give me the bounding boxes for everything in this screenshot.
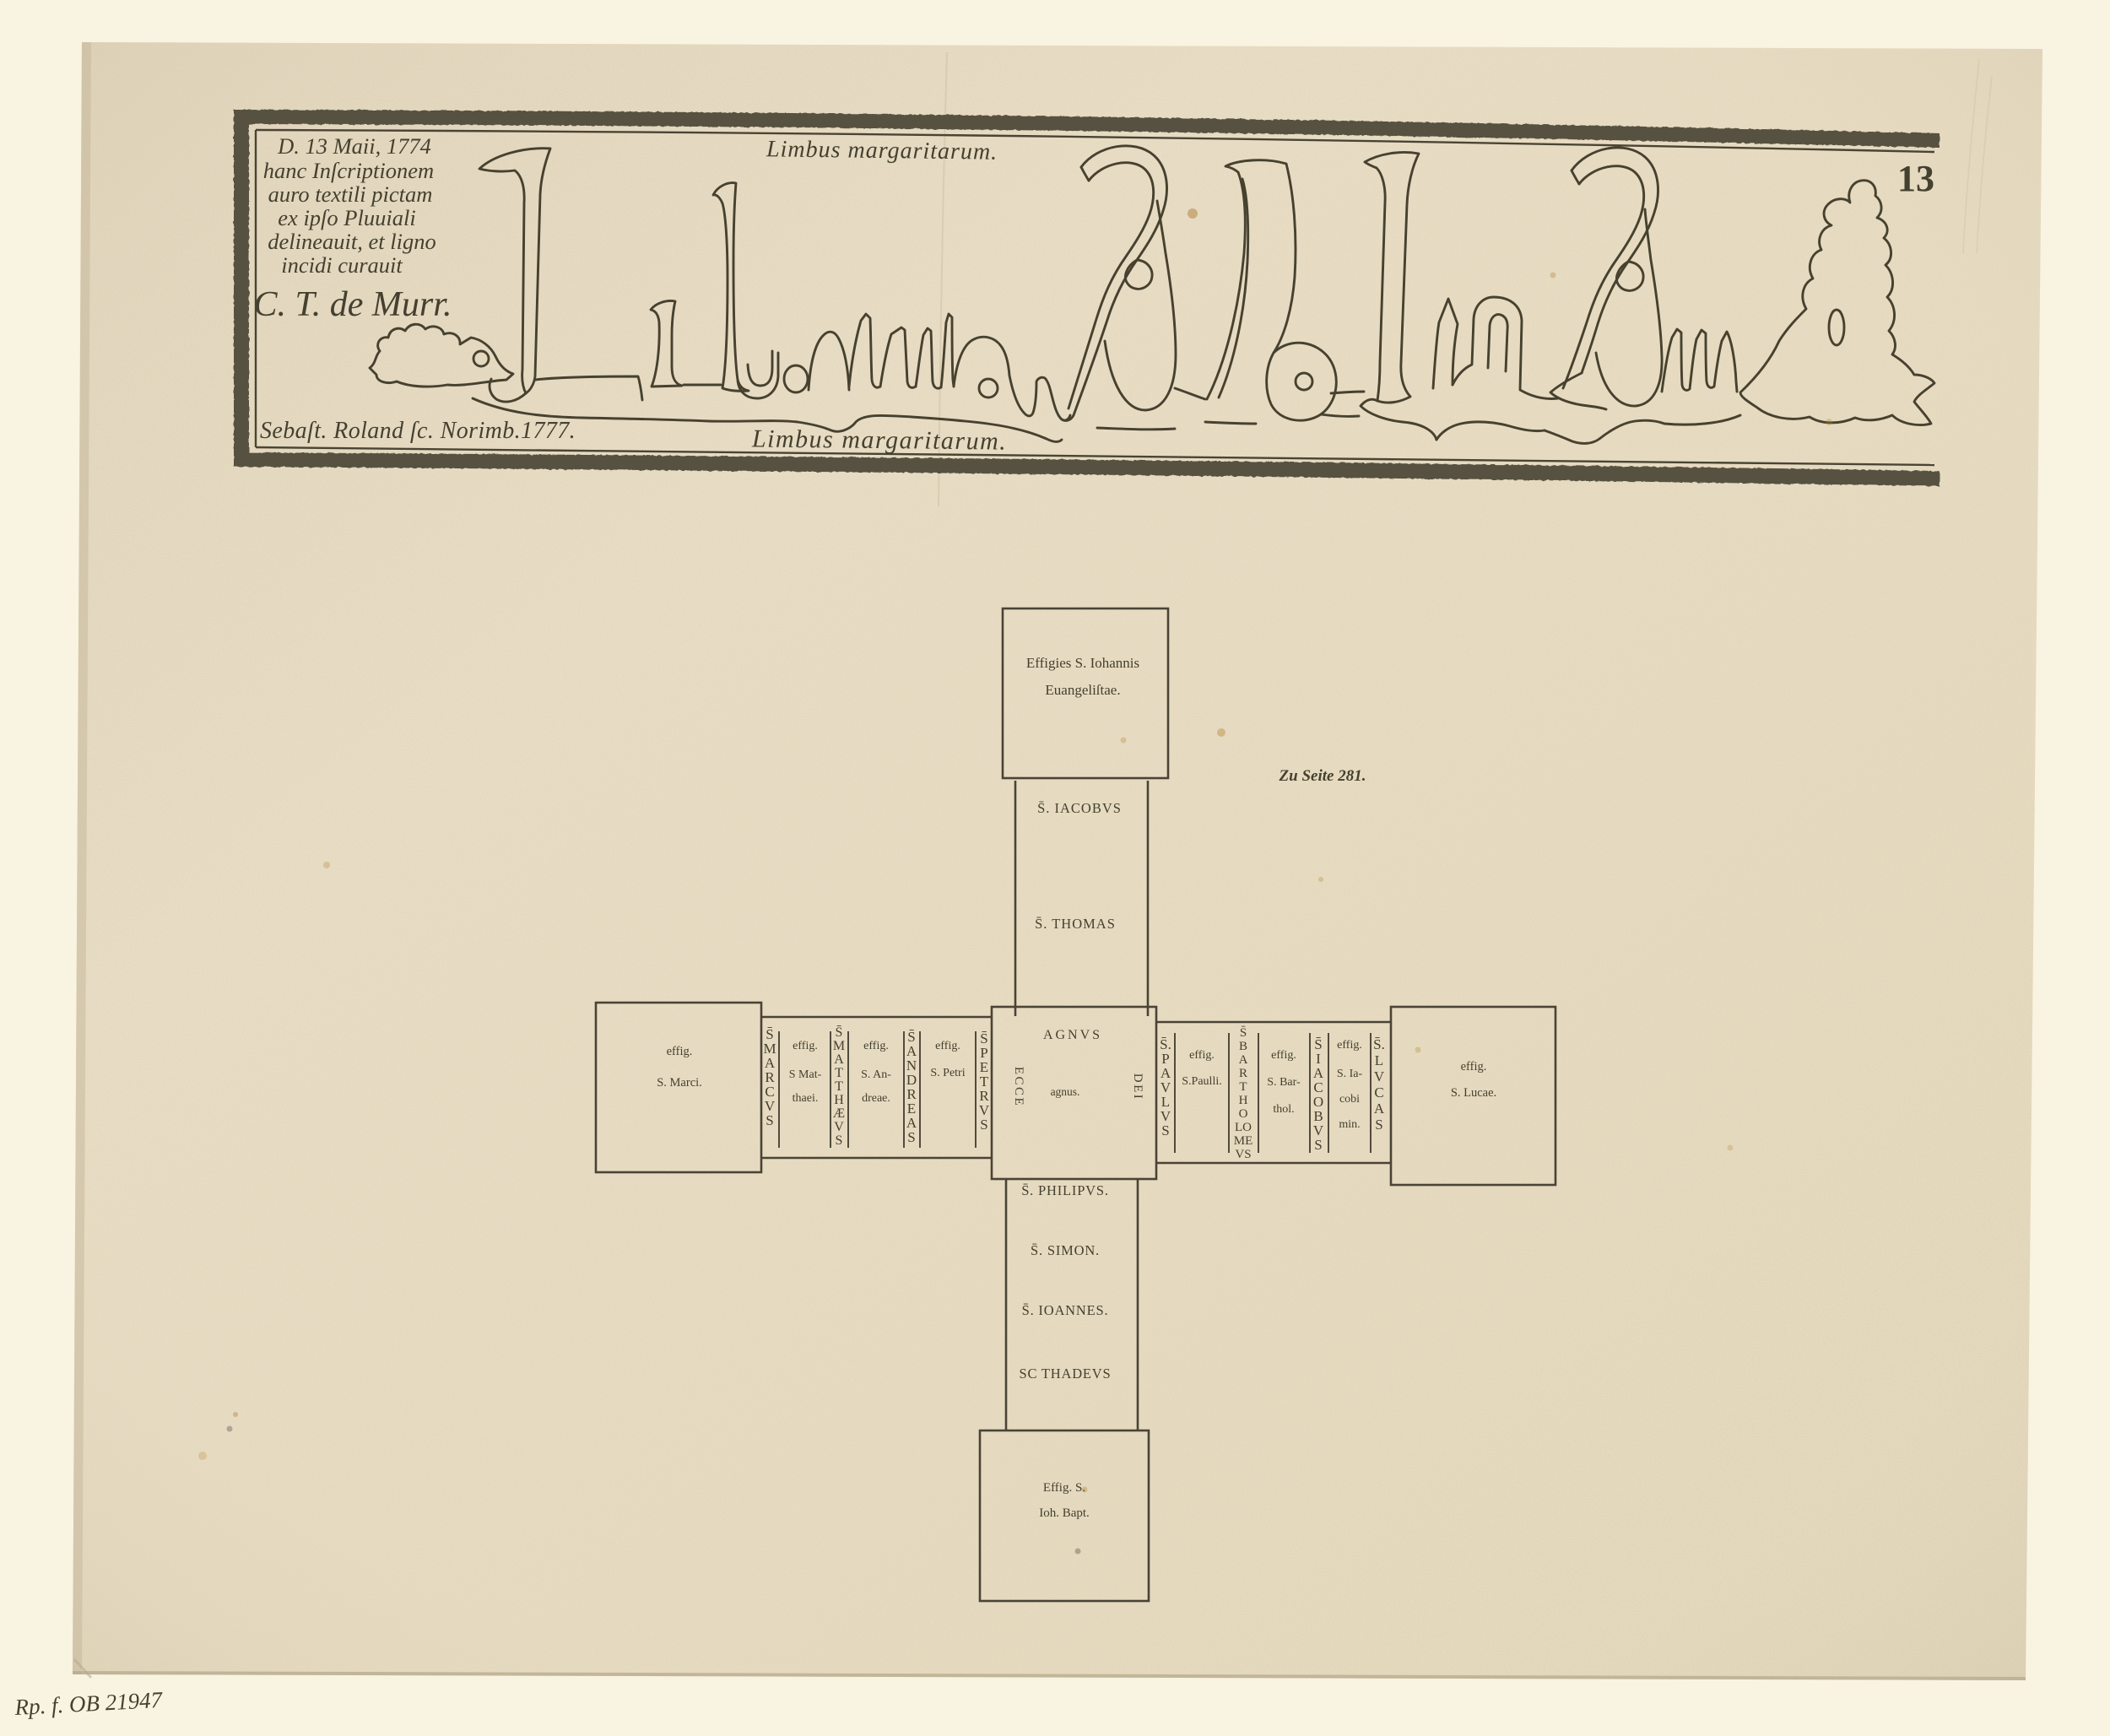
svg-text:effig.: effig. bbox=[667, 1045, 693, 1058]
svg-text:thaei.: thaei. bbox=[793, 1092, 819, 1105]
svg-text:effig.: effig. bbox=[1337, 1039, 1362, 1052]
svg-text:effig.: effig. bbox=[1271, 1049, 1296, 1062]
svg-text:LO: LO bbox=[1235, 1121, 1252, 1134]
svg-text:effig.: effig. bbox=[935, 1040, 960, 1052]
svg-text:Effigies S. Iohannis: Effigies S. Iohannis bbox=[1026, 655, 1139, 671]
svg-text:Ioh. Bapt.: Ioh. Bapt. bbox=[1039, 1506, 1090, 1520]
svg-text:effig.: effig. bbox=[863, 1040, 889, 1052]
svg-text:S. Lucae.: S. Lucae. bbox=[1451, 1086, 1496, 1100]
svg-text:AGNVS: AGNVS bbox=[1043, 1028, 1102, 1042]
svg-text:Zu Seite 281.: Zu Seite 281. bbox=[1279, 767, 1366, 785]
svg-text:S̄. PHILIPVS.: S̄. PHILIPVS. bbox=[1021, 1182, 1109, 1198]
svg-text:incidi curauit: incidi curauit bbox=[281, 252, 403, 278]
svg-text:S: S bbox=[1375, 1117, 1382, 1133]
svg-text:DEI: DEI bbox=[1131, 1074, 1144, 1101]
svg-text:R: R bbox=[1239, 1067, 1247, 1080]
svg-text:C: C bbox=[1374, 1084, 1383, 1101]
svg-text:Æ: Æ bbox=[833, 1106, 845, 1121]
svg-text:S. Bar-: S. Bar- bbox=[1267, 1076, 1301, 1089]
svg-text:M: M bbox=[833, 1039, 845, 1053]
svg-text:A: A bbox=[1239, 1053, 1248, 1067]
svg-text:delineauit, et ligno: delineauit, et ligno bbox=[268, 229, 436, 254]
svg-text:Effig. S.: Effig. S. bbox=[1043, 1481, 1085, 1495]
svg-text:VS: VS bbox=[1235, 1148, 1251, 1161]
svg-text:Limbus margaritarum.: Limbus margaritarum. bbox=[751, 425, 1008, 455]
svg-text:S: S bbox=[766, 1112, 773, 1128]
svg-text:D. 13 Maii, 1774: D. 13 Maii, 1774 bbox=[277, 133, 431, 159]
svg-text:T: T bbox=[835, 1079, 843, 1094]
svg-text:S̄. IACOBVS: S̄. IACOBVS bbox=[1037, 800, 1122, 816]
svg-text:S: S bbox=[1161, 1122, 1169, 1138]
svg-text:S. Marci.: S. Marci. bbox=[657, 1076, 702, 1090]
svg-text:A: A bbox=[834, 1052, 844, 1067]
svg-text:V: V bbox=[834, 1120, 844, 1134]
svg-text:L: L bbox=[1375, 1052, 1383, 1068]
svg-text:S: S bbox=[980, 1117, 987, 1133]
svg-text:S.Paulli.: S.Paulli. bbox=[1182, 1075, 1221, 1088]
svg-text:agnus.: agnus. bbox=[1051, 1085, 1080, 1098]
svg-text:Limbus margaritarum.: Limbus margaritarum. bbox=[766, 136, 998, 165]
svg-text:S̄: S̄ bbox=[1240, 1026, 1247, 1040]
svg-text:Euangeliſtae.: Euangeliſtae. bbox=[1045, 682, 1120, 698]
svg-text:Rp. f. OB 21947: Rp. f. OB 21947 bbox=[14, 1687, 165, 1720]
svg-text:effig.: effig. bbox=[793, 1040, 818, 1052]
svg-text:ex ipſo Pluuiali: ex ipſo Pluuiali bbox=[278, 205, 415, 230]
svg-text:ECCE: ECCE bbox=[1012, 1067, 1025, 1107]
svg-text:H: H bbox=[834, 1093, 844, 1107]
svg-text:13: 13 bbox=[1897, 158, 1934, 199]
svg-text:S: S bbox=[1314, 1137, 1322, 1153]
svg-text:S̄.: S̄. bbox=[1373, 1036, 1385, 1052]
svg-text:V: V bbox=[1374, 1068, 1385, 1084]
svg-text:O: O bbox=[1239, 1107, 1248, 1121]
svg-text:T: T bbox=[835, 1066, 843, 1080]
svg-text:S̄. THOMAS: S̄. THOMAS bbox=[1035, 916, 1116, 932]
svg-text:auro textili pictam: auro textili pictam bbox=[268, 181, 433, 207]
svg-text:S: S bbox=[907, 1129, 915, 1145]
svg-text:S̄. IOANNES.: S̄. IOANNES. bbox=[1022, 1302, 1109, 1318]
svg-text:S. An-: S. An- bbox=[861, 1068, 891, 1081]
svg-text:thol.: thol. bbox=[1273, 1103, 1294, 1116]
svg-text:S: S bbox=[836, 1133, 843, 1148]
svg-text:A: A bbox=[1374, 1101, 1385, 1117]
svg-text:S. Petri: S. Petri bbox=[930, 1067, 965, 1079]
svg-text:dreae.: dreae. bbox=[862, 1092, 890, 1105]
svg-text:S̄. SIMON.: S̄. SIMON. bbox=[1031, 1242, 1100, 1258]
svg-text:effig.: effig. bbox=[1461, 1060, 1487, 1074]
svg-text:S̄: S̄ bbox=[836, 1025, 843, 1040]
svg-text:effig.: effig. bbox=[1189, 1049, 1215, 1062]
svg-text:SC THADEVS: SC THADEVS bbox=[1019, 1366, 1111, 1382]
svg-text:C. T. de Murr.: C. T. de Murr. bbox=[254, 285, 452, 324]
svg-text:S Mat-: S Mat- bbox=[789, 1068, 822, 1081]
svg-text:Sebaſt. Roland ſc. Norimb.1777: Sebaſt. Roland ſc. Norimb.1777. bbox=[260, 418, 576, 444]
svg-text:ME: ME bbox=[1234, 1134, 1253, 1148]
svg-text:min.: min. bbox=[1339, 1118, 1360, 1131]
svg-text:T: T bbox=[1239, 1080, 1247, 1094]
svg-text:hanc Inſcriptionem: hanc Inſcriptionem bbox=[263, 158, 434, 183]
svg-text:H: H bbox=[1239, 1094, 1248, 1107]
svg-text:B: B bbox=[1239, 1040, 1247, 1053]
svg-text:S. Ia-: S. Ia- bbox=[1337, 1068, 1363, 1080]
svg-text:cobi: cobi bbox=[1339, 1093, 1360, 1106]
